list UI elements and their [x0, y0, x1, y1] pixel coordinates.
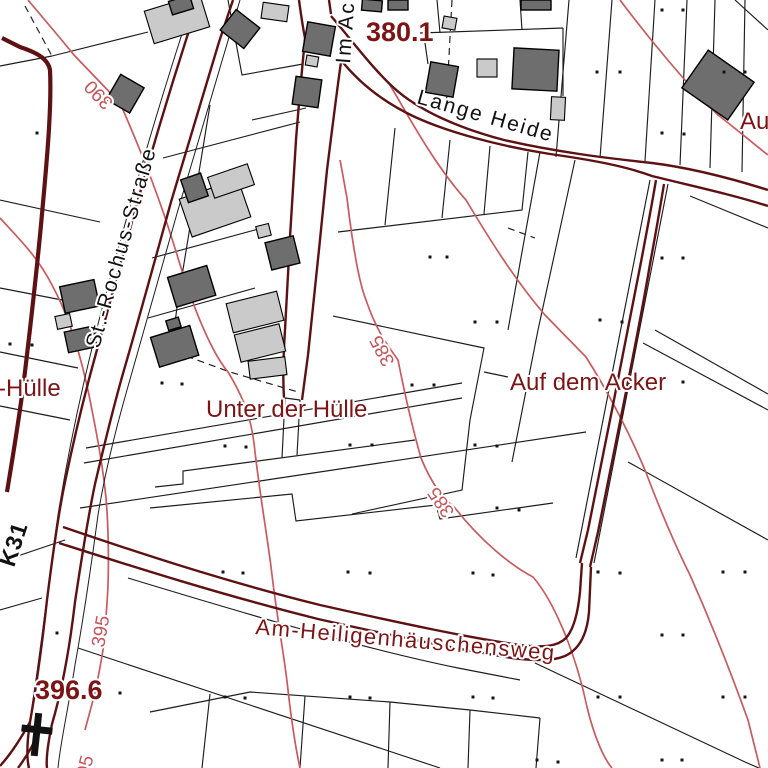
building: [208, 164, 255, 198]
building: [55, 313, 72, 329]
contour-line-385-west: [340, 160, 612, 768]
building: [305, 55, 319, 67]
labels: St.-Rochus-Straße Im Ac Lange Heide K31 …: [0, 0, 768, 768]
buildings: [55, 0, 754, 379]
building: [220, 10, 260, 49]
street-label-im-acker: Im Ac: [332, 0, 359, 64]
building: [512, 48, 559, 91]
road-path-east-edge: [302, 62, 341, 400]
building: [550, 97, 565, 121]
building: [261, 2, 289, 21]
building: [521, 0, 551, 10]
contour-label-395-b: 395: [70, 753, 98, 768]
contour-label-385-b: 385: [424, 483, 459, 521]
area-label-unter-der-huelle: Unter der Hülle: [206, 396, 367, 423]
road-village-edge: [2, 38, 50, 492]
map-canvas[interactable]: St.-Rochus-Straße Im Ac Lange Heide K31 …: [0, 0, 768, 768]
road-st-rochus-east-edge: [47, 0, 233, 768]
building: [265, 236, 300, 270]
street-label-k31: K31: [0, 519, 33, 570]
area-label-r-huelle: r-Hülle: [0, 375, 61, 402]
building: [303, 22, 336, 56]
spot-elevation-380-1: 380.1: [366, 17, 434, 47]
building: [388, 0, 408, 10]
building: [150, 326, 198, 368]
building: [442, 16, 457, 30]
road-casing: [58, 0, 240, 768]
contour-label-395-a: 395: [88, 614, 114, 649]
building: [248, 357, 287, 379]
building: [362, 0, 383, 12]
street-label-st-rochus-strasse: St.-Rochus-Straße: [82, 144, 161, 350]
contour-label-385-a: 385: [366, 332, 399, 370]
road-im-acker-west-edge: [283, 0, 305, 398]
building: [292, 76, 322, 107]
building: [477, 59, 497, 77]
building: [256, 223, 272, 238]
street-label-am-heiligenhaeuschensweg: Am-Heiligenhäuschensweg: [255, 614, 557, 665]
area-label-auf-dem-acker: Auf dem Acker: [510, 369, 666, 396]
road-im-acker-east-edge: [329, 0, 331, 14]
spot-elevation-396-6: 396.6: [35, 675, 103, 705]
area-label-au-partial: Au: [740, 108, 768, 135]
contour-label-390: 390: [80, 76, 117, 113]
